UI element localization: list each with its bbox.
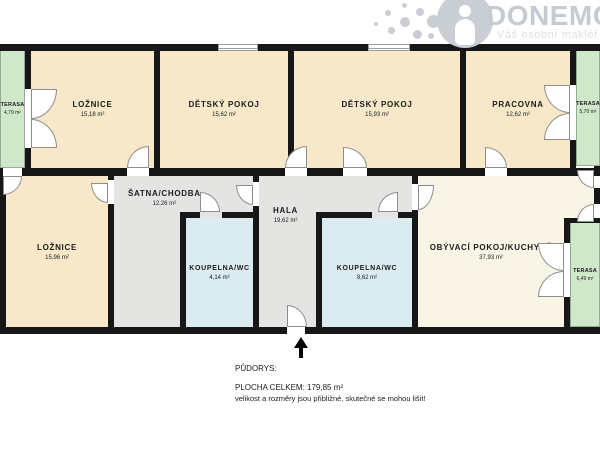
logo-dot bbox=[428, 33, 434, 39]
room-area: 15,62 m² bbox=[212, 112, 236, 118]
logo-person-head bbox=[459, 5, 471, 17]
room-terasa-top-left: TERASA 4,79 m² bbox=[0, 50, 25, 168]
logo-dot bbox=[374, 22, 378, 26]
room-name: LOŽNICE bbox=[72, 100, 112, 109]
wall-segment bbox=[564, 223, 570, 243]
room-name: LOŽNICE bbox=[37, 243, 77, 252]
wall-segment bbox=[222, 212, 253, 218]
room-label: TERASA 4,79 m² bbox=[1, 102, 25, 116]
logo-dot bbox=[400, 17, 410, 27]
wall-segment bbox=[367, 168, 485, 176]
logo-dot bbox=[413, 30, 422, 39]
wall-segment bbox=[0, 168, 3, 176]
wall-segment bbox=[180, 212, 186, 327]
room-label: LOŽNICE 15,18 m² bbox=[72, 100, 112, 118]
wall-segment bbox=[25, 148, 31, 168]
footer-total-area: PLOCHA CELKEM: 179,85 m² bbox=[235, 383, 343, 392]
footer-disclaimer: velikost a rozměry jsou přibližné, skute… bbox=[235, 394, 426, 403]
room-label: LOŽNICE 15,96 m² bbox=[37, 243, 77, 261]
room-koupelna-1: KOUPELNA/WC 4,14 m² bbox=[186, 218, 253, 327]
room-name: KOUPELNA/WC bbox=[189, 265, 250, 272]
logo-tagline: Váš osobní makléř bbox=[497, 29, 598, 41]
wall-segment bbox=[22, 168, 127, 176]
room-name: DĚTSKÝ POKOJ bbox=[188, 100, 259, 109]
room-area: 37,93 m² bbox=[479, 255, 503, 261]
wall-segment bbox=[154, 50, 160, 168]
room-name: HALA bbox=[273, 206, 298, 215]
logo-dot bbox=[385, 10, 391, 16]
room-label: OBÝVACÍ POKOJ/KUCHYNĚ 37,93 m² bbox=[430, 243, 553, 261]
room-area: 15,96 m² bbox=[45, 255, 69, 261]
room-area: 15,18 m² bbox=[81, 112, 105, 118]
wall-segment bbox=[316, 212, 322, 327]
logo-dot bbox=[416, 8, 424, 16]
room-pracovna: PRACOVNA 12,62 m² bbox=[466, 50, 570, 168]
wall-segment bbox=[564, 297, 570, 327]
wall-segment bbox=[108, 204, 114, 327]
room-label: TERASA 6,49 m² bbox=[573, 268, 597, 282]
wall-segment bbox=[307, 168, 343, 176]
wall-segment bbox=[460, 50, 466, 168]
room-name: OBÝVACÍ POKOJ/KUCHYNĚ bbox=[430, 243, 553, 252]
room-loznice-bottom: LOŽNICE 15,96 m² bbox=[6, 176, 108, 327]
wall-segment bbox=[412, 176, 418, 184]
room-area: 12,26 m² bbox=[153, 201, 177, 207]
logo-brand-text: DONEMO bbox=[486, 0, 600, 32]
logo-dot bbox=[388, 27, 395, 34]
room-name: ŠATNA/CHODBA bbox=[128, 189, 201, 198]
logo: DONEMO Váš osobní makléř bbox=[0, 0, 600, 50]
wall-segment bbox=[0, 327, 287, 334]
wall-segment bbox=[398, 212, 412, 218]
room-area: 15,93 m² bbox=[365, 112, 389, 118]
room-name: TERASA bbox=[576, 101, 600, 107]
room-label: ŠATNA/CHODBA 12,26 m² bbox=[128, 189, 201, 207]
wall-segment bbox=[570, 50, 576, 85]
room-detsky-pokoj-2: DĚTSKÝ POKOJ 15,93 m² bbox=[294, 50, 460, 168]
room-area: 19,62 m² bbox=[274, 218, 298, 224]
room-name: DĚTSKÝ POKOJ bbox=[341, 100, 412, 109]
wall-segment bbox=[594, 188, 600, 204]
entrance-arrow-stem bbox=[299, 347, 303, 358]
room-area: 4,79 m² bbox=[4, 110, 21, 116]
wall-segment bbox=[253, 206, 259, 327]
wall-segment bbox=[594, 166, 600, 172]
floor-plan: TERASA 4,79 m² LOŽNICE 15,18 m² DĚTSKÝ P… bbox=[0, 0, 600, 450]
wall-segment bbox=[305, 327, 600, 334]
room-terasa-top-right: TERASA 5,70 m² bbox=[576, 50, 600, 166]
room-area: 8,62 m² bbox=[357, 275, 377, 281]
room-name: TERASA bbox=[573, 268, 597, 274]
room-area: 5,70 m² bbox=[580, 109, 597, 115]
room-label: TERASA 5,70 m² bbox=[576, 101, 600, 115]
wall-segment bbox=[0, 176, 6, 327]
wall-segment bbox=[108, 176, 114, 180]
wall-segment bbox=[253, 176, 259, 182]
room-detsky-pokoj-1: DĚTSKÝ POKOJ 15,62 m² bbox=[160, 50, 288, 168]
room-label: PRACOVNA 12,62 m² bbox=[492, 100, 543, 118]
room-label: HALA 19,62 m² bbox=[273, 206, 298, 224]
room-name: TERASA bbox=[1, 102, 25, 108]
room-area: 12,62 m² bbox=[506, 112, 530, 118]
wall-segment bbox=[25, 50, 31, 89]
room-area: 4,14 m² bbox=[209, 275, 229, 281]
room-label: KOUPELNA/WC 8,62 m² bbox=[337, 265, 398, 281]
room-terasa-bottom-right: TERASA 6,49 m² bbox=[570, 222, 600, 327]
room-label: KOUPELNA/WC 4,14 m² bbox=[189, 265, 250, 281]
wall-segment bbox=[570, 140, 576, 168]
logo-dot bbox=[402, 3, 407, 8]
logo-person-body bbox=[455, 19, 475, 45]
room-name: KOUPELNA/WC bbox=[337, 265, 398, 272]
wall-segment bbox=[180, 212, 200, 218]
room-label: DĚTSKÝ POKOJ 15,93 m² bbox=[341, 100, 412, 118]
footer-title: PŮDORYS: bbox=[235, 364, 277, 373]
wall-segment bbox=[316, 212, 372, 218]
room-koupelna-2: KOUPELNA/WC 8,62 m² bbox=[322, 218, 412, 327]
wall-segment bbox=[412, 210, 418, 327]
room-area: 6,49 m² bbox=[577, 276, 594, 282]
room-name: PRACOVNA bbox=[492, 100, 543, 109]
room-label: DĚTSKÝ POKOJ 15,62 m² bbox=[188, 100, 259, 118]
wall-segment bbox=[149, 168, 285, 176]
